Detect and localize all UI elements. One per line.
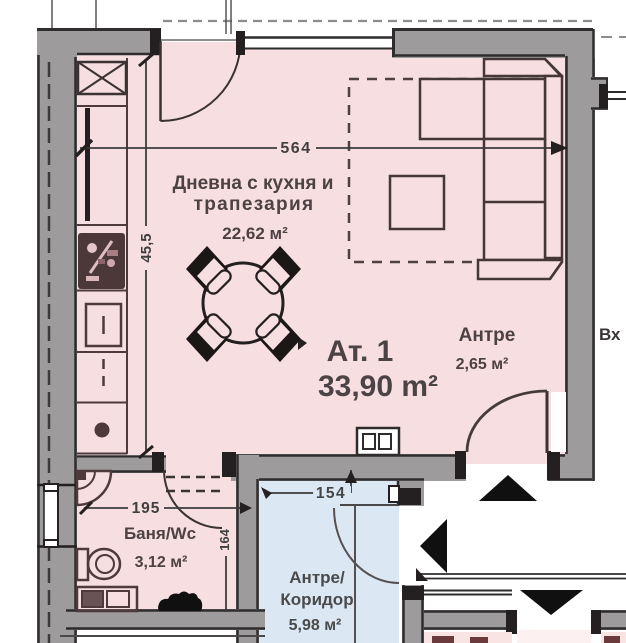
svg-text:564: 564 bbox=[280, 140, 311, 157]
svg-text:164: 164 bbox=[217, 528, 232, 550]
svg-text:трапезария: трапезария bbox=[194, 194, 315, 215]
svg-text:Коридор: Коридор bbox=[280, 590, 353, 609]
svg-text:3,12 м²: 3,12 м² bbox=[135, 554, 188, 571]
svg-text:33,90 m²: 33,90 m² bbox=[318, 370, 438, 403]
svg-text:Антре: Антре bbox=[459, 325, 516, 346]
svg-text:Ат. 1: Ат. 1 bbox=[327, 335, 394, 368]
svg-text:2,65 м²: 2,65 м² bbox=[456, 356, 509, 373]
svg-text:22,62 м²: 22,62 м² bbox=[222, 224, 288, 243]
svg-text:5,98 м²: 5,98 м² bbox=[289, 617, 342, 634]
svg-text:Вх: Вх bbox=[599, 325, 621, 344]
svg-text:Дневна с кухня и: Дневна с кухня и bbox=[173, 173, 334, 194]
svg-text:154: 154 bbox=[316, 485, 346, 502]
svg-text:Антре/: Антре/ bbox=[289, 568, 345, 587]
svg-text:Баня/Wc: Баня/Wc bbox=[124, 524, 196, 543]
svg-text:195: 195 bbox=[132, 500, 161, 517]
svg-text:45,5: 45,5 bbox=[138, 233, 155, 262]
